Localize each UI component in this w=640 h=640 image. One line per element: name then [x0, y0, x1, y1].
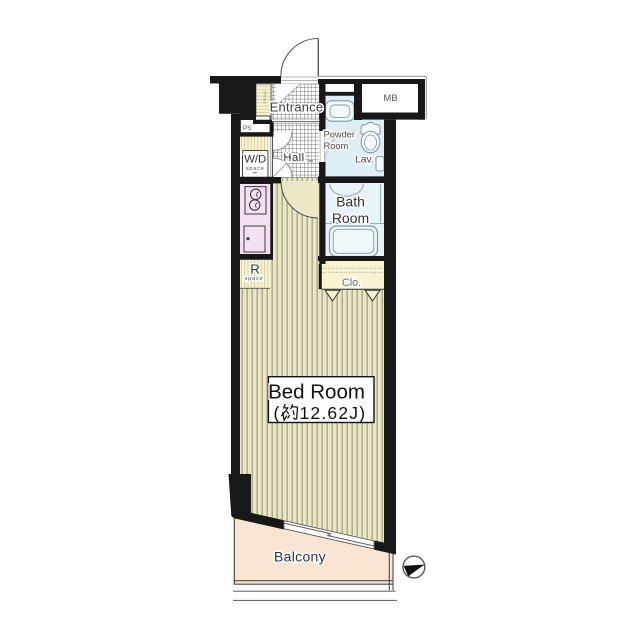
svg-text:Clo.: Clo.: [342, 277, 361, 289]
svg-text:Powder: Powder: [324, 130, 356, 140]
svg-text:(: (: [274, 403, 280, 423]
svg-text:shoes: shoes: [263, 91, 268, 104]
svg-text:Room: Room: [324, 141, 349, 151]
svg-text:Lav.: Lav.: [355, 154, 374, 165]
svg-text:Bath: Bath: [336, 194, 365, 210]
svg-text:Bed Room: Bed Room: [268, 380, 365, 403]
svg-text:Entrance: Entrance: [270, 99, 324, 114]
svg-text:MB: MB: [383, 93, 397, 104]
svg-text:R: R: [250, 262, 260, 277]
svg-text:space: space: [246, 166, 265, 172]
svg-text:PS: PS: [243, 125, 251, 132]
svg-text:W/D: W/D: [244, 154, 266, 166]
svg-text:Hall: Hall: [283, 152, 304, 164]
svg-text:Room: Room: [332, 210, 369, 226]
svg-text:space: space: [245, 276, 264, 282]
svg-text:12.62J): 12.62J): [300, 403, 367, 423]
svg-text:Balcony: Balcony: [274, 549, 326, 565]
